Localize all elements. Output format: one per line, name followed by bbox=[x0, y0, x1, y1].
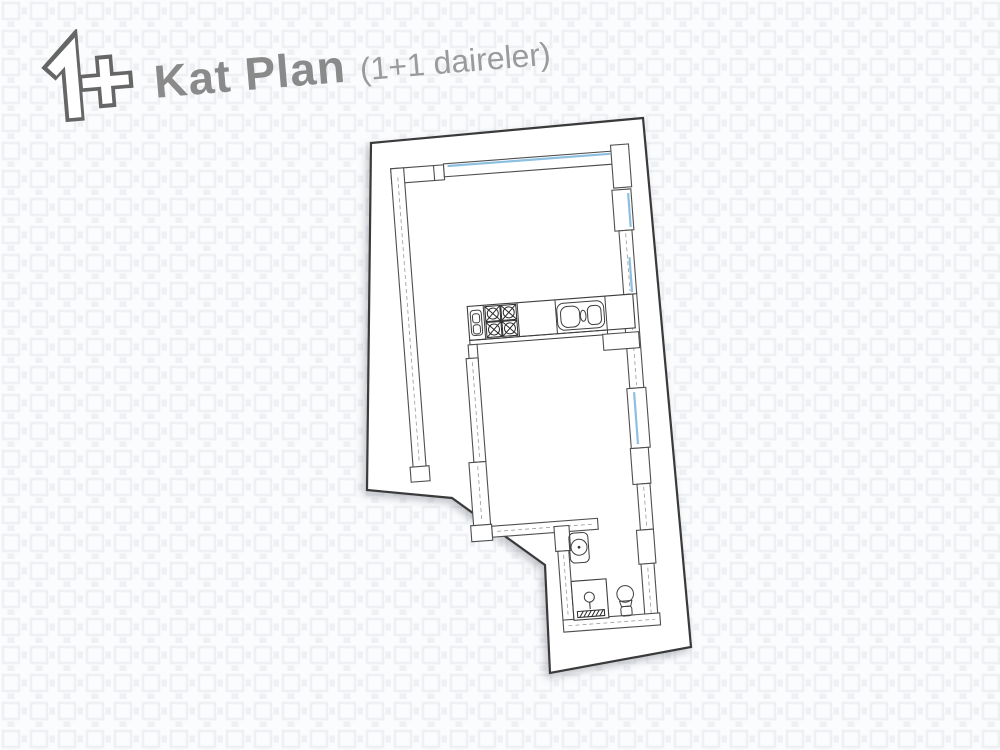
divider-wall-block bbox=[603, 332, 640, 351]
one-plus-logo-icon bbox=[38, 24, 146, 132]
page-subtitle: (1+1 daireler) bbox=[358, 36, 552, 89]
shower-icon bbox=[571, 579, 609, 621]
stove-icon bbox=[485, 304, 518, 337]
corner-post bbox=[611, 144, 632, 188]
page-title: Kat Plan bbox=[152, 39, 348, 109]
